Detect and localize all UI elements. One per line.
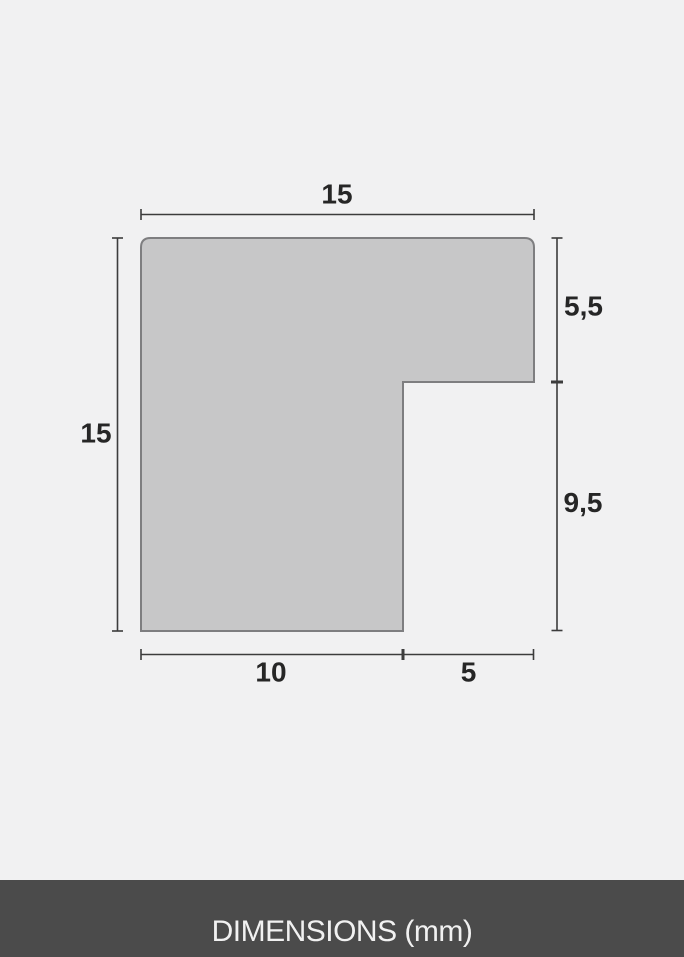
svg-text:5,5: 5,5 bbox=[564, 291, 603, 322]
svg-text:10: 10 bbox=[255, 657, 286, 688]
svg-text:15: 15 bbox=[321, 179, 352, 210]
svg-text:15: 15 bbox=[80, 418, 111, 449]
svg-text:5: 5 bbox=[461, 657, 477, 688]
svg-text:9,5: 9,5 bbox=[564, 487, 603, 518]
